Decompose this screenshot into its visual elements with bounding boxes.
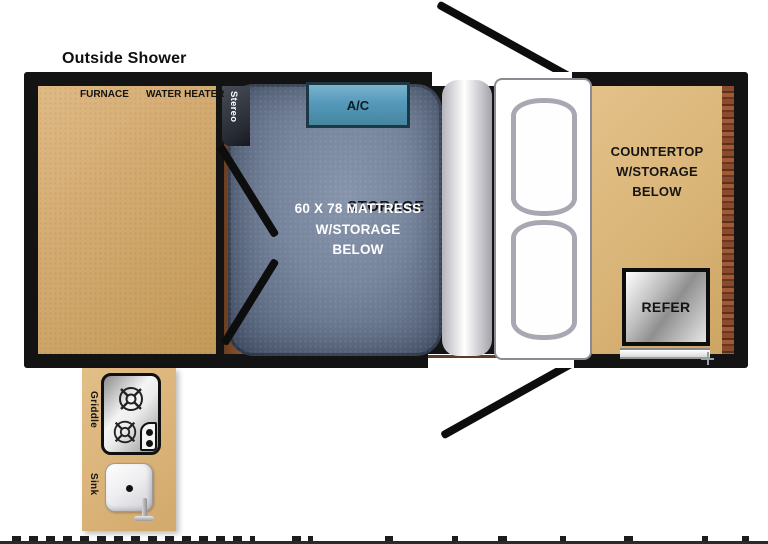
gas-burner-icon (116, 384, 146, 414)
camper-floorplan-outline: FURNACE WATER HEATER STORAGE Stereo A/C … (24, 72, 748, 368)
stereo-label: Stereo (223, 88, 241, 150)
crosshair-mark (701, 352, 714, 365)
mattress-label: 60 X 78 MATTRESS W/STORAGE BELOW (258, 199, 458, 261)
furnace-label: FURNACE (80, 89, 129, 100)
knob-icon (146, 440, 153, 447)
sink (105, 463, 153, 512)
cropped-bottom-line (0, 541, 768, 544)
outside-shower-label: Outside Shower (62, 50, 187, 68)
knob-icon (146, 429, 153, 436)
burner-knobs (140, 422, 157, 451)
refer-label: REFER (642, 299, 691, 315)
rear-door-swing-line (440, 357, 578, 439)
griddle-cooktop (101, 373, 161, 455)
countertop-label-line1: COUNTERTOP (592, 142, 722, 162)
kitchen-slideout: Griddle Sink (82, 368, 176, 531)
storage-area (38, 86, 216, 354)
refrigerator: REFER (622, 268, 710, 346)
ac-label: A/C (347, 98, 369, 113)
mattress-label-line3: BELOW (258, 240, 458, 261)
faucet-base (134, 516, 154, 521)
floorplan-page: Outside Shower FURNACE WATER HEATER STOR… (0, 0, 768, 544)
wood-grain-trim (722, 86, 734, 354)
bed (494, 78, 592, 360)
countertop-label: COUNTERTOP W/STORAGE BELOW (592, 142, 722, 202)
water-heater-label: WATER HEATER (146, 89, 225, 100)
mattress-label-line2: W/STORAGE (258, 220, 458, 241)
pillow (511, 98, 577, 216)
ac-unit: A/C (306, 82, 410, 128)
countertop-label-line2: W/STORAGE (592, 162, 722, 182)
front-door-swing-line (436, 0, 574, 81)
sink-drain-icon (126, 485, 133, 492)
mattress-label-line1: 60 X 78 MATTRESS (258, 199, 458, 220)
refrigerator-base (620, 348, 710, 359)
pillow (511, 220, 577, 340)
gas-burner-icon (111, 418, 139, 446)
